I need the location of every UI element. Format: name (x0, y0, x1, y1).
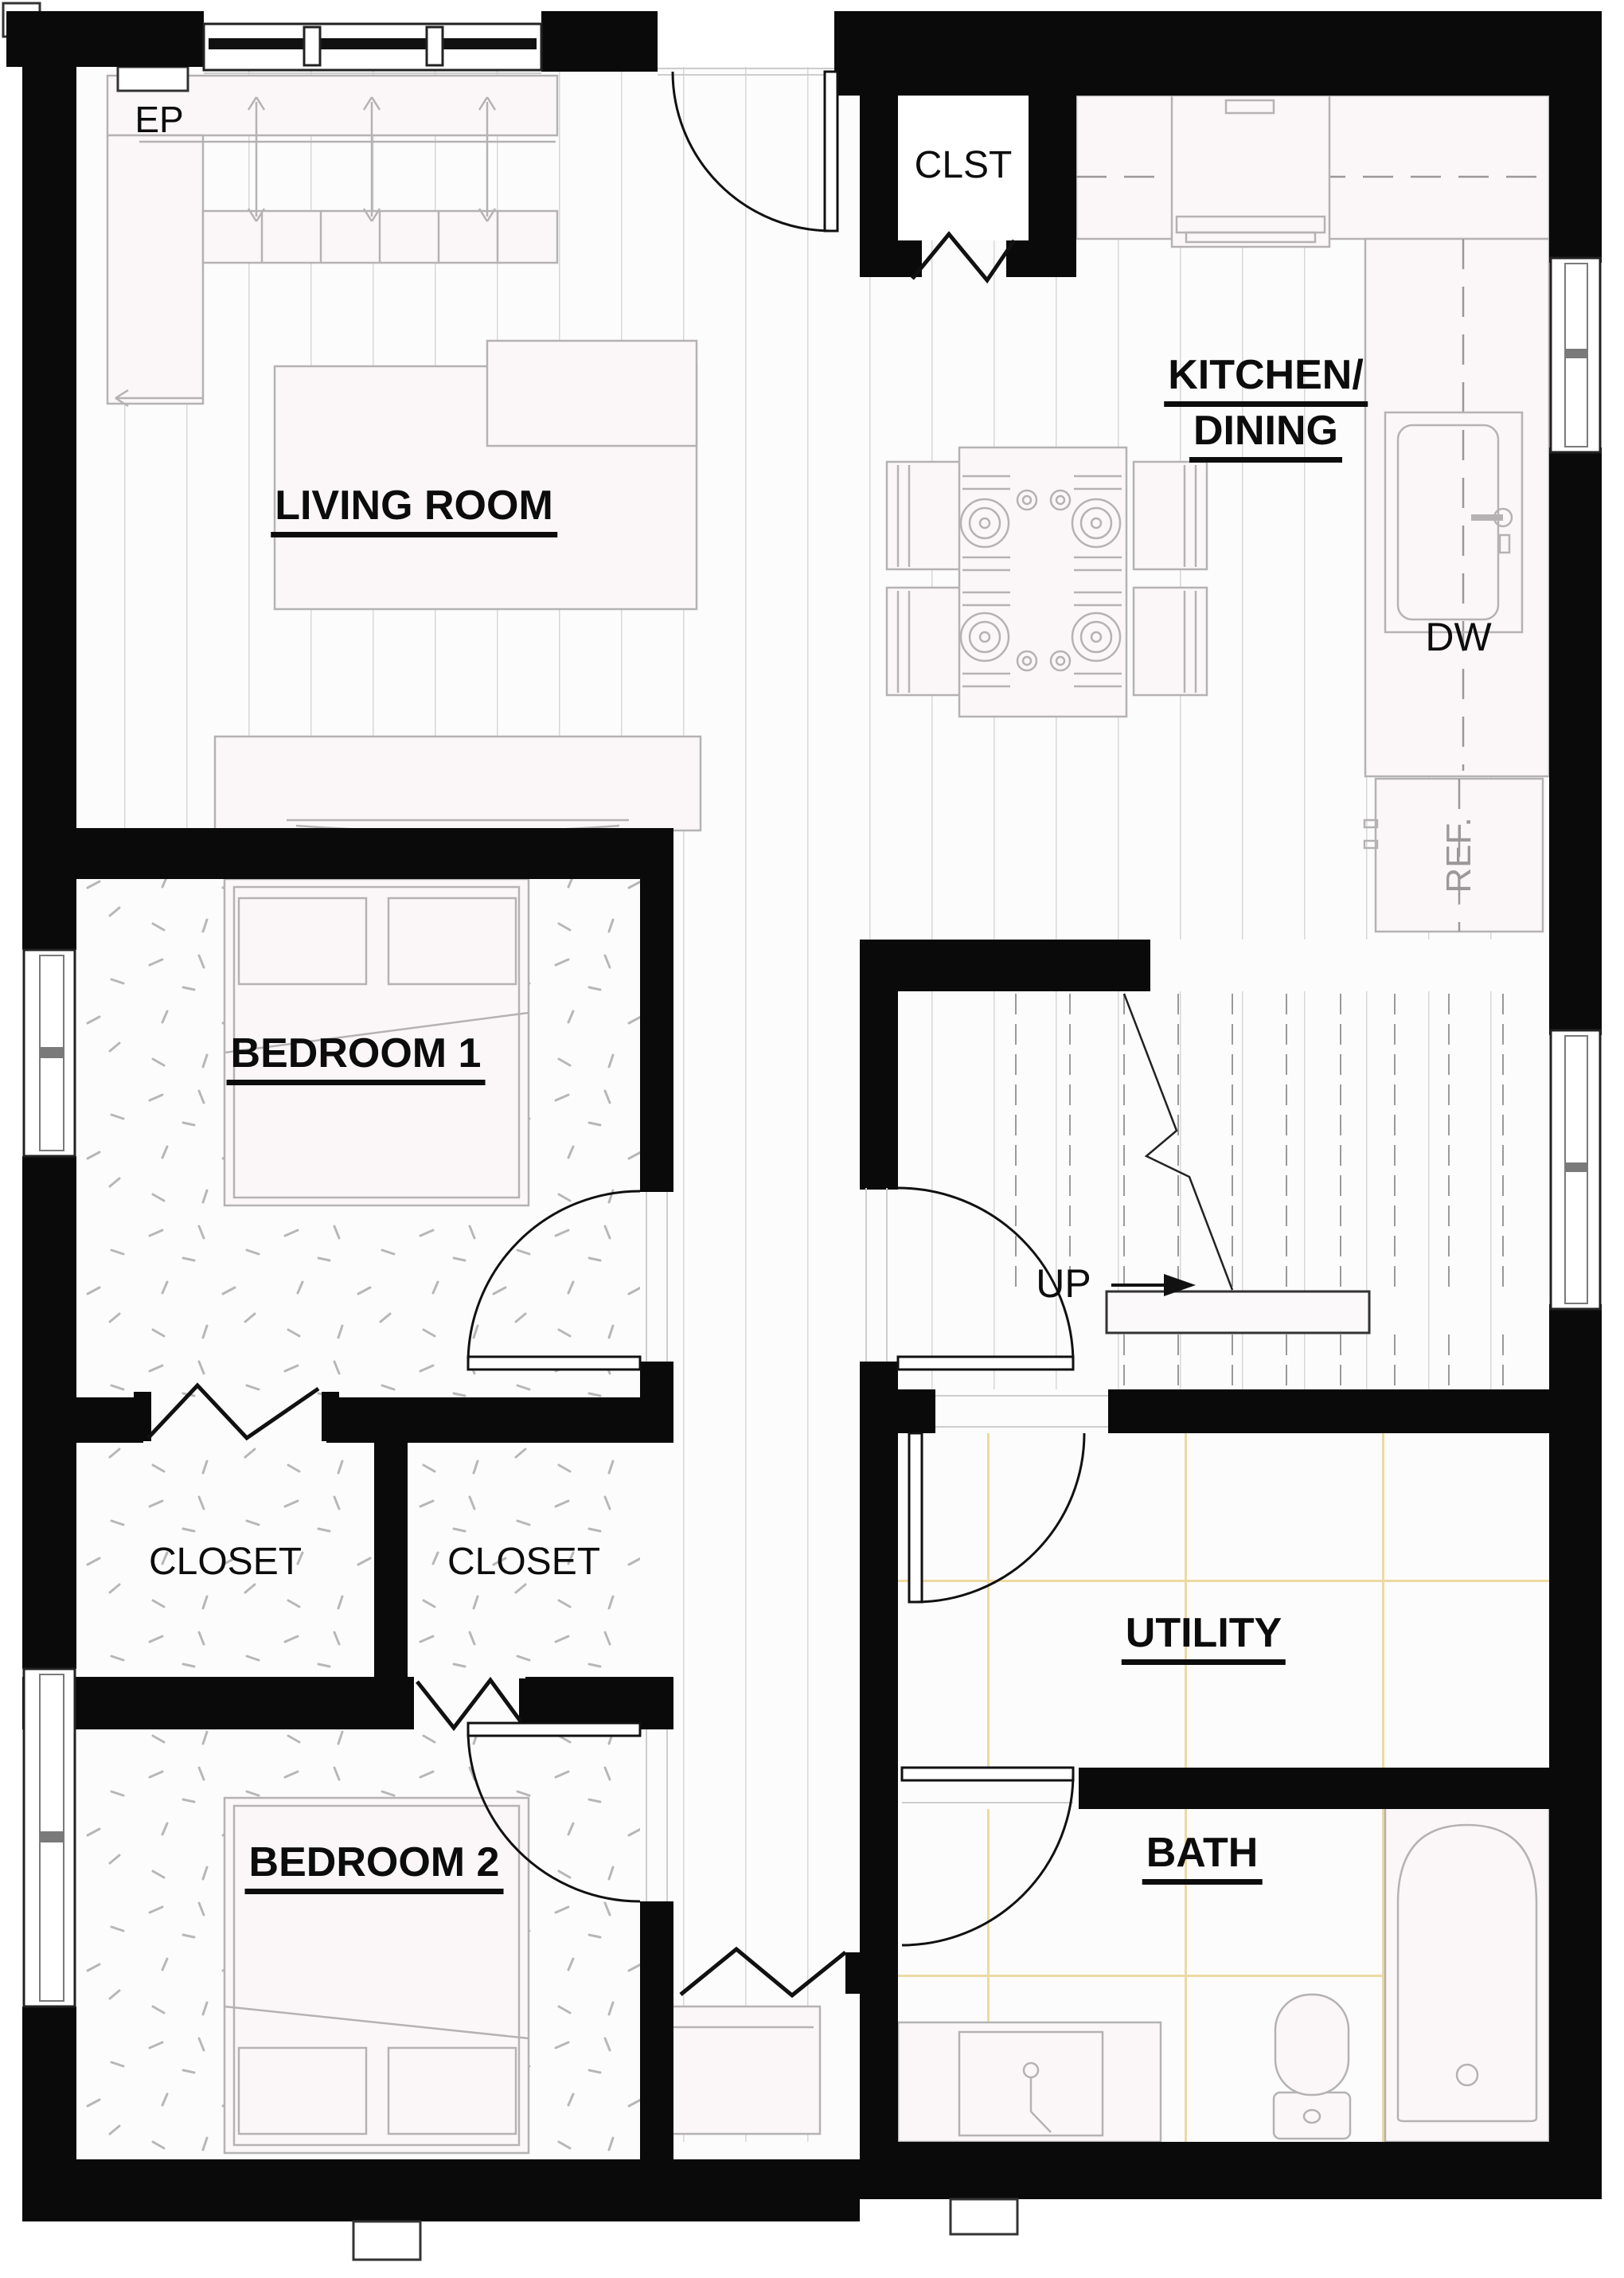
pillow (388, 898, 516, 984)
wall-kitchen-stairs (860, 940, 1150, 991)
floor-plan-drawing (0, 0, 1624, 2278)
electrical-panel (118, 67, 188, 91)
stair-handrail (1107, 1291, 1369, 1333)
kitchen-label-line1: KITCHEN/ (1164, 354, 1368, 407)
vanity (898, 2022, 1161, 2142)
closet-right-label: CLOSET (447, 1543, 600, 1581)
stoop (951, 2199, 1017, 2234)
tv-console (215, 737, 701, 832)
floor-plan: EP LIVING ROOM CLST KITCHEN/ DINING DW R… (0, 0, 1624, 2278)
wall-stairs-utility (1108, 1389, 1549, 1433)
clst-label: CLST (915, 147, 1013, 185)
pillow (239, 2048, 366, 2134)
dw-label: DW (1425, 617, 1491, 657)
closet-left-label: CLOSET (149, 1543, 302, 1581)
hallway-floor (673, 67, 860, 2142)
coffee-table (487, 341, 697, 446)
bedroom2-label: BEDROOM 2 (245, 1842, 504, 1894)
toilet (1274, 1995, 1350, 2139)
ep-label: EP (135, 101, 183, 138)
closet-divider (374, 1443, 408, 1677)
wall-utility-bath (1079, 1768, 1549, 1809)
stair-window (1551, 1030, 1600, 1309)
living-room-label: LIVING ROOM (271, 485, 557, 537)
stoop (353, 2221, 420, 2260)
hall-closet-contents (666, 2006, 820, 2134)
bath-label: BATH (1142, 1832, 1263, 1885)
utility-label: UTILITY (1122, 1612, 1286, 1665)
dining-table (959, 447, 1126, 717)
pillow (388, 2048, 516, 2134)
pillow (239, 898, 366, 984)
living-room-window (204, 24, 541, 73)
bedroom1-label: BEDROOM 1 (227, 1033, 486, 1085)
kitchen-window (1551, 258, 1600, 452)
wall-living-bed1 (22, 828, 673, 879)
up-label: UP (1036, 1264, 1091, 1303)
kitchen-label-line2: DINING (1189, 410, 1342, 463)
ref-label: REF. (1442, 817, 1477, 893)
bedroom1-window (24, 950, 75, 1156)
bathtub (1385, 1801, 1549, 2142)
utility-tile (898, 1433, 1549, 1768)
bedroom2-window (24, 1669, 75, 2006)
water-heater (666, 2006, 820, 2134)
range (1172, 96, 1329, 247)
